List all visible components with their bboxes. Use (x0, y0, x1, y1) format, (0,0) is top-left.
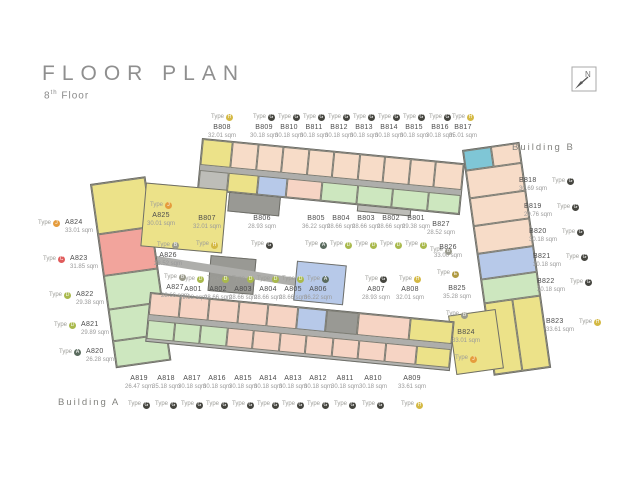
type-A-badge: A (74, 349, 81, 356)
plan-cell (391, 189, 428, 211)
type-H-badge: H (414, 276, 421, 283)
unit-number: A810 (359, 375, 387, 384)
unit-label-A827: TypeBA82728.66 sqm (161, 264, 189, 300)
type-D-badge: D (345, 242, 352, 249)
unit-number: A815 (229, 375, 257, 384)
type-word: Type (365, 276, 378, 284)
plan-cell (227, 173, 258, 195)
plan-cell (572, 67, 596, 91)
unit-area: 30.18 sqm (229, 384, 257, 392)
plan-cell (230, 142, 258, 170)
unit-type-tag: TypeG (362, 401, 384, 409)
unit-type-tag: TypeD (282, 276, 304, 284)
unit-area: 31.85 sqm (70, 264, 98, 272)
type-D-badge: D (395, 242, 402, 249)
type-word: Type (181, 401, 194, 409)
unit-label-B824: B82433.01 sqmTypeJ (452, 329, 480, 365)
unit-area: 30.18 sqm (537, 287, 565, 295)
unit-label-B802: B80228.66 sqmTypeD (377, 215, 405, 251)
type-G-badge: G (567, 178, 574, 185)
type-word: Type (303, 114, 316, 122)
unit-label-A821: TypeDA82129.89 sqm (54, 321, 109, 337)
plan-cell (256, 176, 287, 198)
unit-area: 33.01 sqm (65, 228, 93, 236)
unit-area: 30.01 sqm (147, 221, 175, 229)
plan-cell (332, 152, 360, 180)
type-J-badge: J (53, 220, 60, 227)
type-word: Type (557, 204, 570, 212)
unit-type-tag: TypeB (446, 311, 468, 319)
unit-type-tag: TypeG (552, 178, 574, 186)
type-G-badge: G (577, 229, 584, 236)
unit-type-tag: TypeG (334, 401, 356, 409)
unit-number: B820 (529, 228, 557, 237)
type-G-badge: G (272, 402, 279, 409)
type-D-badge: D (297, 276, 304, 283)
type-A-badge: A (322, 276, 329, 283)
unit-area: 30.18 sqm (275, 133, 303, 141)
unit-label-A806: TypeAA80636.22 sqm (304, 266, 332, 302)
type-word: Type (282, 276, 295, 284)
unit-area: 29.38 sqm (402, 224, 430, 232)
unit-type-tag: TypeG (128, 401, 150, 409)
unit-type-tag: TypeG (251, 241, 273, 249)
unit-area: 30.18 sqm (375, 133, 403, 141)
unit-number: B817 (449, 124, 477, 133)
unit-label-B817: TypeHB81735.01 sqm (449, 104, 477, 140)
unit-number: A807 (362, 286, 390, 295)
type-word: Type (59, 349, 72, 357)
type-H-badge: H (416, 402, 423, 409)
plan-cell (408, 159, 436, 187)
type-G-badge: G (585, 279, 592, 286)
unit-label-A819: A81926.47 sqmTypeG (125, 375, 153, 411)
unit-label-A805: TypeDA80528.66 sqm (279, 266, 307, 302)
unit-area: 33.61 sqm (398, 384, 426, 392)
unit-number: B807 (193, 215, 221, 224)
plan-cell (415, 346, 451, 368)
unit-number: B824 (452, 329, 480, 338)
unit-label-A826: TypeBA82628.52 sqm (154, 232, 182, 268)
type-word: Type (232, 401, 245, 409)
unit-label-A824: TypeJA82433.01 sqm (38, 219, 93, 235)
unit-label-A818: A81835.18 sqmTypeG (152, 375, 180, 411)
unit-number: B805 (302, 215, 330, 224)
plan-cell: B82230.18 sqm (537, 278, 565, 294)
unit-label-B823: B82333.61 sqmTypeH (546, 318, 601, 334)
floor-subtitle: 8th Floor (44, 90, 89, 101)
unit-label-A812: A81230.18 sqmTypeG (304, 375, 332, 411)
type-word: Type (579, 319, 592, 327)
plan-cell (208, 299, 239, 324)
type-G-badge: G (266, 242, 273, 249)
type-word: Type (334, 401, 347, 409)
type-word: Type (401, 401, 414, 409)
unit-label-B803: B80328.66 sqmTypeD (352, 215, 380, 251)
unit-type-tag: TypeG (570, 279, 592, 287)
type-word: Type (157, 242, 170, 250)
unit-area: 28.66 sqm (161, 293, 189, 301)
unit-number: A818 (152, 375, 180, 384)
floor-ordinal: th (51, 90, 58, 96)
unit-area: 30.18 sqm (533, 262, 561, 270)
type-D-badge: D (420, 242, 427, 249)
unit-area: 30.18 sqm (325, 133, 353, 141)
type-word: Type (257, 401, 270, 409)
unit-number: B823 (546, 318, 574, 327)
unit-label-A804: TypeDA80428.66 sqm (254, 266, 282, 302)
unit-number: A823 (70, 255, 98, 264)
page-title: FLOOR PLAN (42, 62, 245, 86)
plan-cell (383, 157, 411, 185)
unit-type-tag: TypeJ (38, 220, 60, 228)
type-H-badge: H (594, 319, 601, 326)
type-J-badge: J (470, 356, 477, 363)
unit-label-A822: TypeDA82229.38 sqm (49, 291, 104, 307)
unit-number: B804 (327, 215, 355, 224)
unit-number: A821 (81, 321, 109, 330)
unit-number: B809 (250, 124, 278, 133)
plan-cell (200, 139, 233, 168)
plan-cell (278, 333, 306, 354)
type-G-badge: G (418, 114, 425, 121)
type-word: Type (452, 114, 465, 122)
unit-area: 32.01 sqm (208, 133, 236, 141)
unit-number: A820 (86, 348, 114, 357)
unit-number: A817 (178, 375, 206, 384)
unit-type-tag: TypeD (380, 241, 402, 249)
type-B-badge: B (461, 312, 468, 319)
type-word: Type (207, 276, 220, 284)
unit-number: A814 (254, 375, 282, 384)
unit-label-B812: TypeGB81230.18 sqm (325, 104, 353, 140)
plan-cell (146, 320, 174, 341)
unit-number: B822 (537, 278, 565, 287)
unit-number: B801 (402, 215, 430, 224)
unit-number: A826 (154, 252, 182, 261)
unit-type-tag: TypeG (328, 114, 350, 122)
unit-type-tag: TypeD (355, 241, 377, 249)
type-D-badge: D (370, 242, 377, 249)
unit-label-A803: TypeDA80328.66 sqm (229, 266, 257, 302)
unit-label-A807: TypeGA80728.93 sqm (362, 266, 390, 302)
unit-label-B804: B80428.66 sqmTypeD (327, 215, 355, 251)
unit-area: 30.18 sqm (300, 133, 328, 141)
type-word: Type (355, 241, 368, 249)
type-word: Type (328, 114, 341, 122)
north-compass-icon: N (571, 66, 597, 97)
plan-cell (237, 302, 268, 327)
unit-label-A810: A81030.18 sqmTypeG (359, 375, 387, 411)
unit-label-A815: A81530.18 sqmTypeG (229, 375, 257, 411)
type-B-badge: B (179, 274, 186, 281)
unit-area: 28.66 sqm (229, 295, 257, 303)
plan-cell: A82433.01 sqm (65, 219, 93, 235)
plan-cell (281, 147, 309, 175)
unit-number: B802 (377, 215, 405, 224)
unit-type-tag: TypeH (579, 319, 601, 327)
plan-cell (305, 335, 333, 356)
type-word: Type (455, 355, 468, 363)
unit-area: 28.66 sqm (352, 224, 380, 232)
type-word: Type (429, 114, 442, 122)
type-word: Type (128, 401, 141, 409)
plan-cell (173, 323, 201, 344)
unit-number: A803 (229, 286, 257, 295)
type-H-badge: H (211, 242, 218, 249)
type-word: Type (330, 241, 343, 249)
type-word: Type (38, 220, 51, 228)
plan-cell (331, 338, 359, 359)
plan-cell: A82026.28 sqm (86, 348, 114, 364)
unit-label-B819: B81929.76 sqmTypeG (524, 203, 579, 219)
unit-label-A820: TypeAA82026.28 sqm (59, 348, 114, 364)
unit-area: 33.61 sqm (546, 327, 574, 335)
type-word: Type (164, 274, 177, 282)
unit-area: 36.22 sqm (304, 295, 332, 303)
unit-type-tag: TypeH (452, 114, 474, 122)
building-a-label: Building A (58, 397, 120, 408)
type-word: Type (232, 276, 245, 284)
type-word: Type (43, 256, 56, 264)
unit-area: 30.18 sqm (203, 384, 231, 392)
unit-type-tag: TypeH (196, 241, 218, 249)
type-word: Type (307, 276, 320, 284)
unit-type-tag: TypeJ (455, 355, 477, 363)
unit-type-tag: TypeG (181, 401, 203, 409)
type-H-badge: H (226, 114, 233, 121)
unit-area: 26.28 sqm (86, 357, 114, 365)
unit-number: B814 (375, 124, 403, 133)
type-word: Type (562, 229, 575, 237)
unit-number: A825 (147, 212, 175, 221)
unit-label-A808: TypeHA80832.01 sqm (396, 266, 424, 302)
unit-label-A816: A81630.18 sqmTypeG (203, 375, 231, 411)
type-E-badge: E (452, 271, 459, 278)
unit-area: 33.01 sqm (452, 338, 480, 346)
unit-label-A809: A80933.61 sqmTypeH (398, 375, 426, 411)
unit-type-tag: TypeG (155, 401, 177, 409)
unit-area: 28.93 sqm (362, 295, 390, 303)
type-word: Type (155, 401, 168, 409)
type-word: Type (54, 322, 67, 330)
type-word: Type (278, 114, 291, 122)
type-G-badge: G (196, 402, 203, 409)
unit-number: B826 (434, 244, 462, 253)
unit-type-tag: TypeD (405, 241, 427, 249)
unit-label-B810: TypeGB81030.18 sqm (275, 104, 303, 140)
unit-label-B809: TypeGB80930.18 sqm (250, 104, 278, 140)
type-word: Type (305, 241, 318, 249)
unit-type-tag: TypeG (232, 401, 254, 409)
unit-type-tag: TypeH (401, 401, 423, 409)
type-G-badge: G (572, 204, 579, 211)
plan-cell (286, 178, 323, 200)
type-word: Type (211, 114, 224, 122)
unit-type-tag: TypeA (305, 241, 327, 249)
type-word: Type (380, 241, 393, 249)
unit-type-tag: TypeG (282, 401, 304, 409)
unit-label-B806: B80628.93 sqmTypeG (248, 215, 276, 251)
unit-type-tag: TypeB (157, 242, 179, 250)
unit-label-B811: TypeGB81130.18 sqm (300, 104, 328, 140)
plan-cell (357, 154, 385, 182)
unit-number: B813 (350, 124, 378, 133)
unit-number: A806 (304, 286, 332, 295)
building-b-label: Building B (512, 142, 575, 153)
unit-type-tag: TypeG (353, 114, 375, 122)
type-word: Type (446, 311, 459, 319)
type-G-badge: G (247, 402, 254, 409)
type-G-badge: G (322, 402, 329, 409)
unit-number: A812 (304, 375, 332, 384)
unit-area: 30.18 sqm (250, 133, 278, 141)
unit-type-tag: TypeG (257, 401, 279, 409)
plan-cell (266, 304, 297, 329)
unit-area: 33.00 sqm (434, 253, 462, 261)
wing-a-south (145, 292, 454, 371)
type-word: Type (307, 401, 320, 409)
unit-type-tag: TypeD (257, 276, 279, 284)
type-word: Type (257, 276, 270, 284)
unit-area: 30.18 sqm (254, 384, 282, 392)
plan-cell (307, 149, 335, 177)
unit-number: B803 (352, 215, 380, 224)
type-G-badge: G (170, 402, 177, 409)
unit-label-A811: A81130.18 sqmTypeG (331, 375, 359, 411)
unit-number: A816 (203, 375, 231, 384)
unit-area: 28.66 sqm (377, 224, 405, 232)
plan-cell (252, 330, 280, 351)
unit-label-A817: A81730.18 sqmTypeG (178, 375, 206, 411)
unit-label-B801: B80129.38 sqmTypeD (402, 215, 430, 251)
type-word: Type (49, 292, 62, 300)
unit-type-tag: TypeA (307, 276, 329, 284)
type-G-badge: G (293, 114, 300, 121)
unit-number: B815 (400, 124, 428, 133)
unit-type-tag: TypeG (566, 254, 588, 262)
unit-label-B813: TypeGB81330.18 sqm (350, 104, 378, 140)
unit-area: 26.47 sqm (125, 384, 153, 392)
unit-number: A824 (65, 219, 93, 228)
type-word: Type (566, 254, 579, 262)
plan-cell (296, 307, 327, 332)
type-C-badge: C (58, 256, 65, 263)
unit-label-A802: TypeDA80228.66 sqm (204, 266, 232, 302)
type-word: Type (196, 241, 209, 249)
unit-type-tag: TypeD (207, 276, 229, 284)
plan-cell: B81929.76 sqm (524, 203, 552, 219)
unit-number: A819 (125, 375, 153, 384)
unit-area: 28.66 sqm (254, 295, 282, 303)
plan-cell (325, 310, 359, 335)
unit-type-tag: TypeE (437, 270, 459, 278)
unit-type-tag: TypeH (211, 114, 233, 122)
unit-area: 32.01 sqm (193, 224, 221, 232)
unit-area: 35.28 sqm (443, 294, 471, 302)
plan-cell (384, 343, 417, 365)
unit-area: 28.66 sqm (327, 224, 355, 232)
plan-cell (199, 325, 227, 346)
type-D-badge: D (272, 276, 279, 283)
plan-cell (321, 182, 358, 204)
unit-type-tag: TypeG (278, 114, 300, 122)
type-word: Type (552, 178, 565, 186)
type-word: Type (378, 114, 391, 122)
unit-type-tag: TypeA (59, 349, 81, 357)
type-word: Type (282, 401, 295, 409)
type-word: Type (362, 401, 375, 409)
unit-type-tag: TypeD (54, 322, 76, 330)
floor-word: Floor (61, 90, 89, 101)
type-G-badge: G (268, 114, 275, 121)
unit-area: 28.66 sqm (204, 295, 232, 303)
type-word: Type (405, 241, 418, 249)
type-D-badge: D (64, 292, 71, 299)
unit-area: 28.66 sqm (279, 295, 307, 303)
type-word: Type (353, 114, 366, 122)
unit-type-tag: TypeG (403, 114, 425, 122)
unit-area: 30.18 sqm (304, 384, 332, 392)
plan-cell (427, 192, 461, 214)
type-J-badge: J (165, 202, 172, 209)
type-B-badge: B (172, 242, 179, 249)
unit-label-B821: B82130.18 sqmTypeG (533, 253, 588, 269)
type-D-badge: D (222, 276, 229, 283)
unit-type-tag: TypeG (303, 114, 325, 122)
plan-cell: N (571, 66, 597, 92)
plan-cell (256, 144, 284, 172)
unit-area: 30.18 sqm (400, 133, 428, 141)
type-word: Type (403, 114, 416, 122)
unit-number: A827 (161, 284, 189, 293)
unit-area: 30.18 sqm (178, 384, 206, 392)
unit-label-A814: A81430.18 sqmTypeG (254, 375, 282, 411)
unit-area: 30.18 sqm (359, 384, 387, 392)
type-word: Type (399, 276, 412, 284)
type-G-badge: G (393, 114, 400, 121)
unit-label-B815: TypeGB81530.18 sqm (400, 104, 428, 140)
unit-type-tag: TypeG (206, 401, 228, 409)
plan-cell (356, 185, 393, 207)
type-word: Type (570, 279, 583, 287)
unit-type-tag: TypeG (378, 114, 400, 122)
plan-cell (226, 328, 254, 349)
unit-number: B818 (519, 177, 547, 186)
type-G-badge: G (297, 402, 304, 409)
unit-area: 30.69 sqm (519, 186, 547, 194)
unit-number: B811 (300, 124, 328, 133)
unit-number: B821 (533, 253, 561, 262)
unit-number: B825 (443, 285, 471, 294)
unit-area: 29.76 sqm (524, 212, 552, 220)
unit-number: B819 (524, 203, 552, 212)
unit-label-A825: TypeJA82530.01 sqm (147, 192, 175, 228)
type-word: Type (253, 114, 266, 122)
unit-number: A804 (254, 286, 282, 295)
unit-type-tag: TypeB (164, 274, 186, 282)
type-G-badge: G (380, 276, 387, 283)
unit-label-B814: TypeGB81430.18 sqm (375, 104, 403, 140)
unit-number: B806 (248, 215, 276, 224)
unit-label-B822: B82230.18 sqmTypeG (537, 278, 592, 294)
unit-label-A813: A81330.18 sqmTypeG (279, 375, 307, 411)
unit-number: A808 (396, 286, 424, 295)
type-D-badge: D (69, 322, 76, 329)
plan-cell: A82229.38 sqm (76, 291, 104, 307)
type-H-badge: H (467, 114, 474, 121)
unit-number: A809 (398, 375, 426, 384)
